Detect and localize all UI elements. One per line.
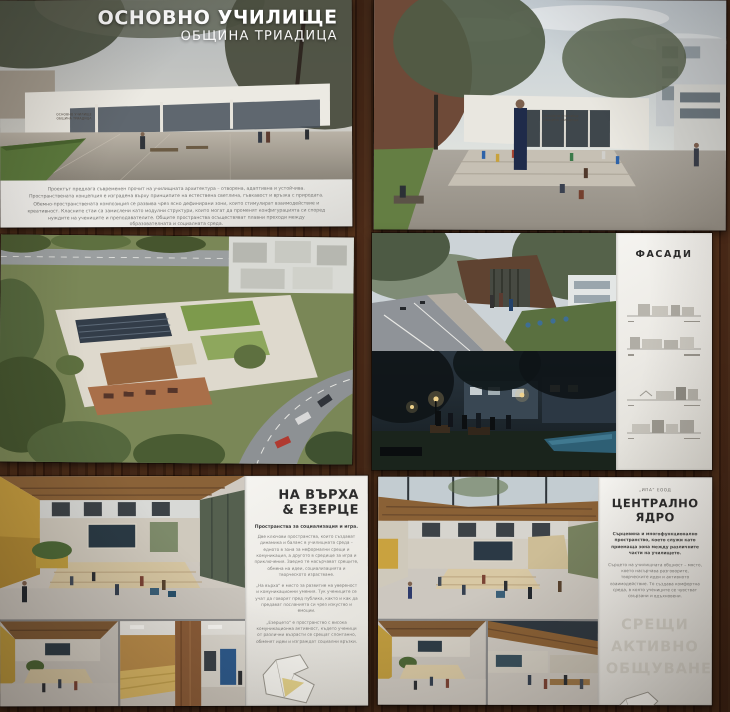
core-watermark: СРЕЩИ АКТИВНО ОБЩУВАНЕ [606,614,704,682]
intro-paragraph-2: Обемно-пространствената композиция се ра… [26,202,326,228]
elevation-drawing-3 [624,382,704,406]
board-aerial [0,234,354,464]
summit-floor-plan: НИВО 1 [254,653,359,707]
building-facade-sign: ОСНОВНО УЧИЛИЩЕ ОБЩИНА ТРИАДИЦА [541,115,581,123]
core-card: „ИПА“ ЕООД ЦЕНТРАЛНО ЯДРО Сърцевина и мн… [598,477,712,705]
board-facades: ФАСАДИ [372,233,712,470]
elevation-drawing-4 [624,415,704,439]
intro-caption-strip: Проектът предлага съвременен прочит на у… [0,179,352,227]
elevation-drawing-2 [624,331,704,355]
board-summit: НА ВЪРХА & ЕЗЕРЦЕ Пространства за социал… [0,476,368,707]
summit-card: НА ВЪРХА & ЕЗЕРЦЕ Пространства за социал… [245,476,368,706]
board-intro: ОСНОВНО УЧИЛИЩЕ ОБЩИНА ТРИАДИЦА ОСНОВНО … [0,0,352,228]
project-title-block: ОСНОВНО УЧИЛИЩЕ ОБЩИНА ТРИАДИЦА [98,8,338,44]
facades-title: ФАСАДИ [624,249,704,260]
board-core: „ИПА“ ЕООД ЦЕНТРАЛНО ЯДРО Сърцевина и мн… [378,477,712,706]
render-street-view [372,233,616,351]
render-night-courtyard [372,351,616,470]
summit-title: НА ВЪРХА & ЕЗЕРЦЕ [254,489,359,518]
render-core-small-1 [378,621,486,705]
core-title: ЦЕНТРАЛНО ЯДРО [606,496,704,524]
render-core-small-2 [488,621,598,705]
intro-paragraph-1: Проектът предлага съвременен прочит на у… [26,186,326,200]
render-hallway-small [120,621,245,706]
elevation-drawing-1 [624,298,704,322]
render-atrium-small [0,621,118,706]
facades-card: ФАСАДИ [616,233,712,470]
core-floor-plan: НИВО 1 [606,689,704,705]
render-aerial-view [0,234,354,464]
core-body-paragraph: Сърцето на училищната общност – място, к… [608,562,702,600]
presentation-wall-photo: ОСНОВНО УЧИЛИЩЕ ОБЩИНА ТРИАДИЦА ОСНОВНО … [0,0,730,712]
summit-subtitle: Пространства за социализация и игра. [254,525,359,530]
render-atrium-main [0,476,245,619]
summit-paragraph-2: „На върха“ е място за развитие на уверен… [254,583,359,615]
project-title: ОСНОВНО УЧИЛИЩЕ [98,8,338,29]
summit-paragraph-3: „Езерцето“ е пространство с висока комун… [254,619,359,644]
core-lead-paragraph: Сърцевина и многофункционално пространст… [608,532,702,558]
summit-paragraph-1: Две ключови пространства, които създават… [254,534,359,578]
company-name: „ИПА“ ЕООД [606,487,704,492]
render-core-atrium [378,477,600,619]
board-courtyard: ОСНОВНО УЧИЛИЩЕ ОБЩИНА ТРИАДИЦА [374,0,727,230]
building-facade-sign: ОСНОВНО УЧИЛИЩЕ ОБЩИНА ТРИАДИЦА [56,113,92,121]
project-subtitle: ОБЩИНА ТРИАДИЦА [98,28,338,44]
